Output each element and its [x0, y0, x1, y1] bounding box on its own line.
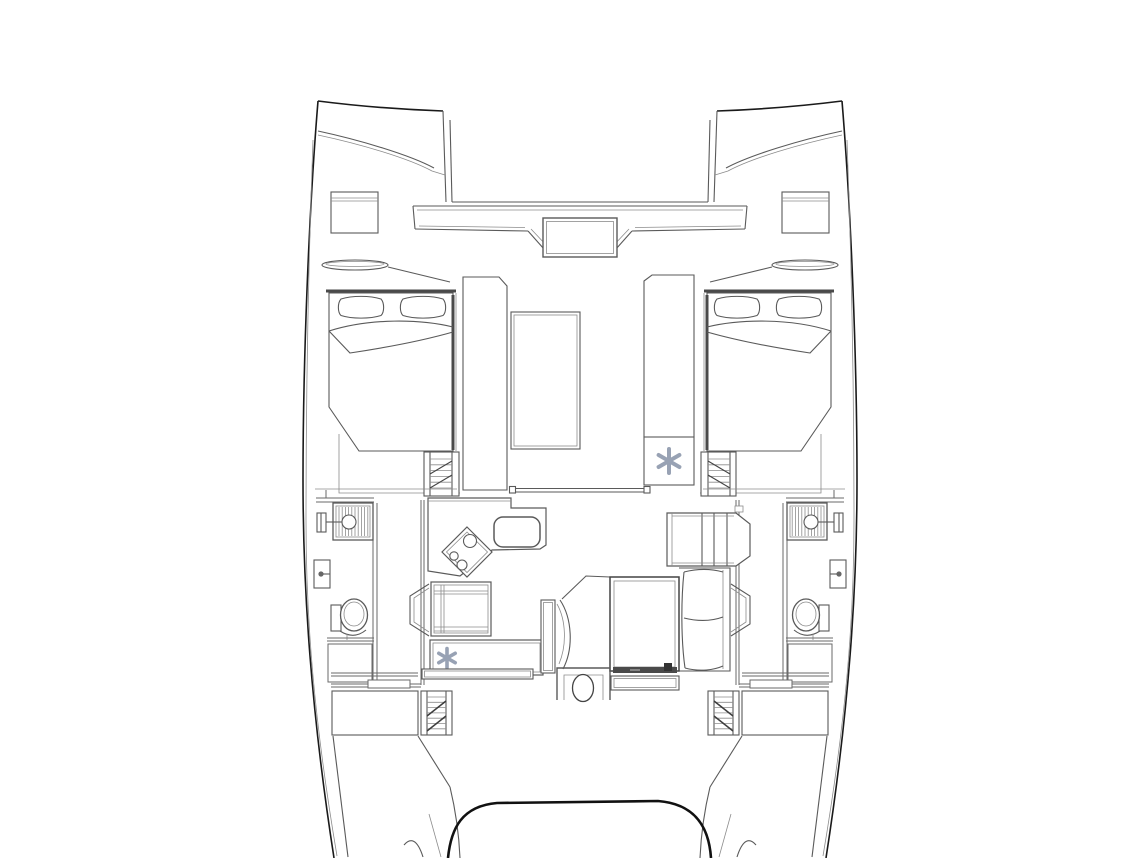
sink: [494, 517, 540, 547]
forward-crossbeam: [413, 206, 747, 257]
aft-companionway-steps: [421, 691, 452, 735]
nav-chair: [557, 576, 610, 669]
burner: [450, 552, 458, 560]
port-hull: [303, 101, 460, 858]
salon-panel-starboard: [644, 275, 694, 437]
port-bow-top-edge: [318, 101, 443, 111]
port-sheer-line-inner: [318, 135, 445, 175]
port-stern: [333, 736, 460, 858]
trampoline-port-edge: [450, 120, 452, 202]
dinette-bench: [667, 506, 750, 566]
catamaran-floor-plan-page: [0, 0, 1144, 858]
transom-platform: [448, 801, 711, 858]
helm-seat: [557, 668, 610, 702]
dinette-table: [610, 577, 679, 690]
air-conditioning-unit: [644, 437, 694, 485]
port-head-shower: [317, 503, 373, 540]
aft-deck-locker: [332, 691, 418, 735]
starboard-hull-mirrored: [700, 101, 857, 858]
salon-panel-port: [463, 277, 507, 490]
anchor-locker-seat: [543, 218, 617, 257]
port-shower-head: [342, 515, 356, 529]
galley-counter: [428, 498, 546, 577]
table-step: [611, 676, 679, 690]
catamaran-floor-plan-canvas: [0, 0, 1144, 858]
port-porthole: [314, 560, 330, 588]
galley-end-cabinet: [541, 600, 555, 673]
burner: [464, 535, 477, 548]
salon-skylight: [511, 312, 580, 449]
port-bow-inner-edge: [443, 111, 446, 202]
foredeck-hatch: [331, 192, 378, 233]
port-toilet: [331, 599, 368, 640]
burner: [457, 560, 467, 570]
salon-sliding-door: [510, 487, 651, 494]
bow-locker-lid: [322, 260, 450, 282]
stern-steps: [404, 841, 423, 857]
port-hull-outline: [303, 101, 334, 858]
port-angled-bay: [410, 584, 429, 636]
refrigerator-cabinet: [431, 582, 491, 636]
dinette-sofa: [679, 568, 730, 671]
aft-door-unit: [422, 669, 533, 679]
